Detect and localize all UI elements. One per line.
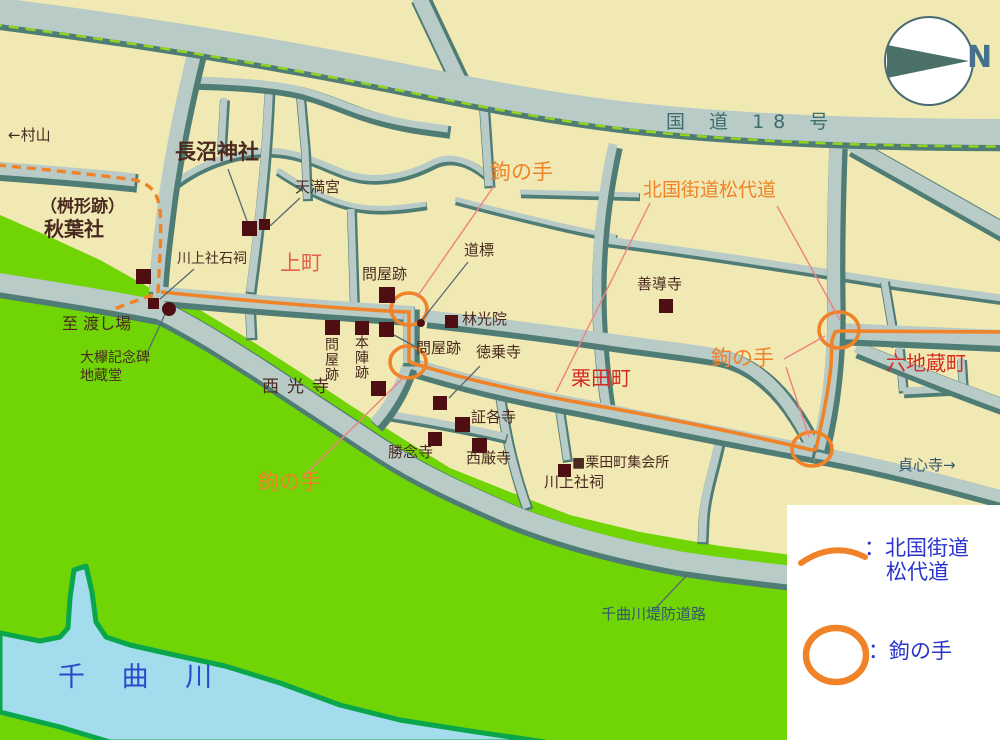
toiya-ato-1-marker [325, 320, 340, 335]
akiba-shrine-marker [136, 269, 151, 284]
tokujoji-marker [433, 396, 447, 410]
rinkoin-marker [445, 315, 458, 328]
road [520, 192, 639, 195]
legend-symbols [787, 505, 1000, 740]
toiya-ato-kami-marker [379, 287, 395, 303]
honjin-ato-marker [355, 321, 369, 335]
shokakuji-marker [455, 417, 470, 432]
saigonji-marker [472, 438, 487, 453]
saikoji-marker [371, 381, 386, 396]
road [221, 98, 224, 150]
dohyo-stone-marker [417, 319, 425, 327]
compass-rose [885, 17, 973, 105]
zendoji-marker [659, 299, 673, 313]
historical-road-map: ←村山長沼神社天満宮（桝形跡）秋葉社川上社石祠上町問屋跡道標至 渡し場大欅記念碑… [0, 0, 1000, 740]
kurita-meeting-hall-marker [558, 464, 571, 477]
shonenji-marker [428, 432, 442, 446]
road [351, 209, 354, 306]
tenmangu-marker [259, 219, 270, 230]
toiya-ato-2-marker [379, 322, 394, 337]
okeyaki-kinenhi-marker [162, 302, 176, 316]
naganuma-shrine-marker [242, 221, 257, 236]
kawakami-sekishi-marker [148, 298, 159, 309]
legend-kaginote-circle-icon [806, 628, 866, 682]
legend-box: ：北国街道 松代道 ：鉤の手 [787, 505, 1000, 740]
legend-route-line-icon [801, 550, 865, 563]
